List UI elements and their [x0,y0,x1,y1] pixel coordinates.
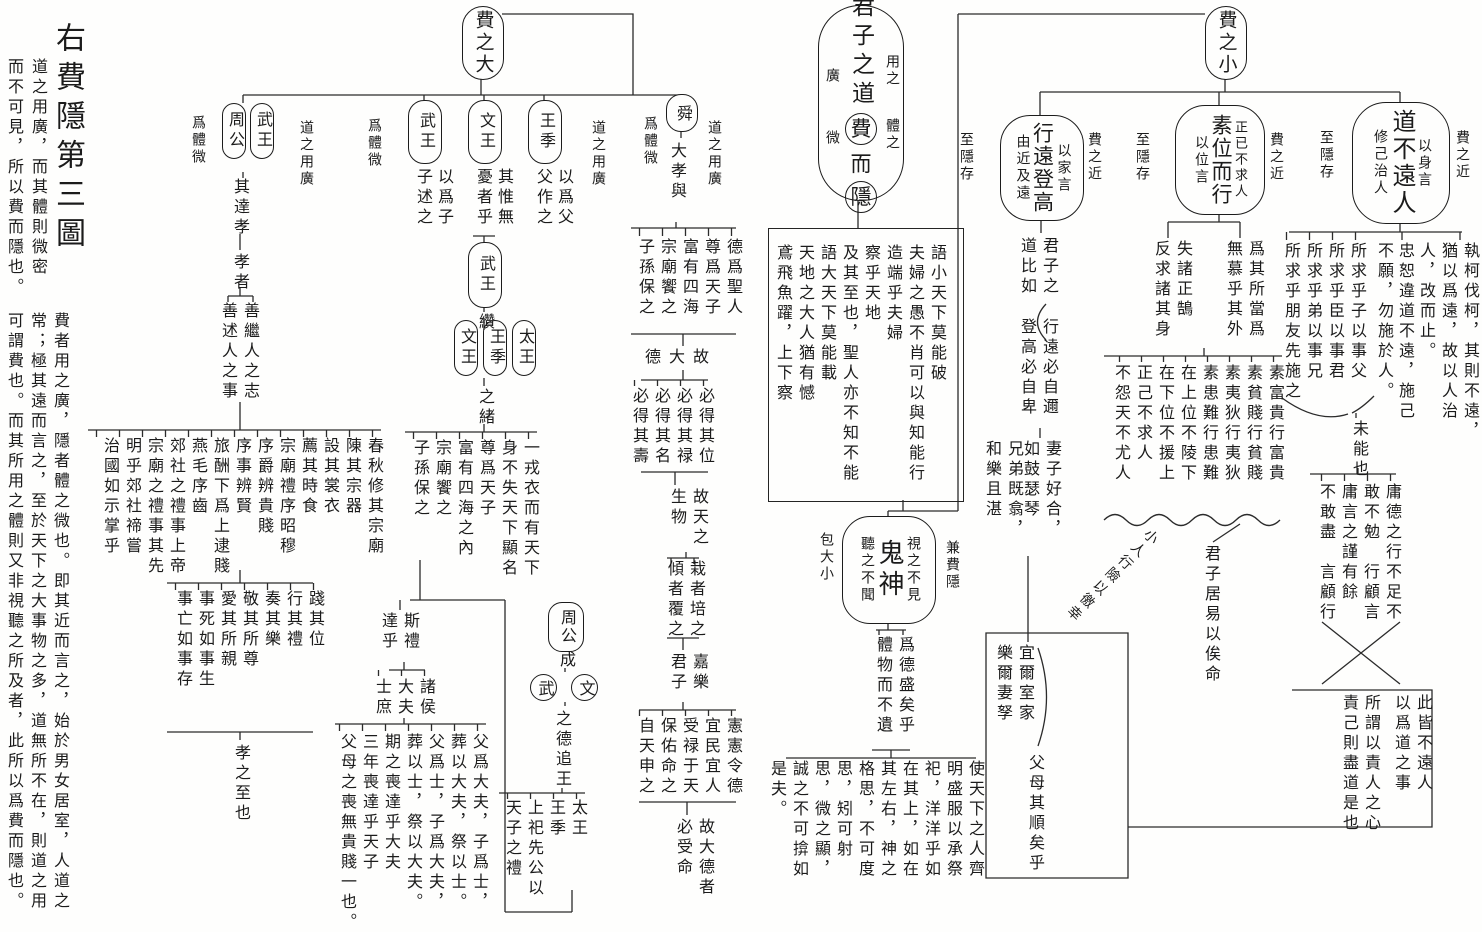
text-column: 善述人之事 [219,302,235,402]
scripture-column: 夫婦之愚不肖可以與知能行 [906,244,922,484]
note-dao-zhi-yong-guang-2: 道之用廣 [590,120,604,188]
text-column: 登高必自卑 [1018,318,1034,418]
fei-zhi-da-label: 費之大 [474,10,493,76]
mourning-column: 期之喪達乎大夫 [382,733,398,932]
wangji-oval: 王季 [528,100,562,164]
note-guang: 廣 [824,68,838,85]
guishen-inner: 視之不見 鬼神 聽之不聞 [859,536,919,604]
person-oval: 周公 [222,103,246,159]
dao-bu-yuan-inner: 以身言 道不遠人 修己治人 [1372,109,1430,217]
text-column: 爲德盛矣乎 [896,636,912,736]
text-column: 不敢盡 言顧行 [1317,483,1333,623]
dao-bu-yuan-node: 以身言 道不遠人 修己治人 [1352,102,1450,224]
text-column: 富有四海 [680,238,696,318]
text-column: 自天申之 [636,717,652,797]
zhougong-cheng-label: 周公 [558,609,574,645]
text-column: 栽者培之 [687,560,703,640]
margin-note-column: 可謂費也。而其所用之體則又非視聽之所及者，此所以爲費而隱也。 [5,312,21,912]
rite-column: 宗廟禮序昭穆 [277,437,293,577]
fei-zhi-xiao-label: 費之小 [1217,10,1236,76]
xing-yuan-inner: 以家言 行遠登高 由近及遠 [1015,122,1070,214]
text-column: 無慕乎其外 [1224,240,1240,340]
su-wei-inner: 正已不求人 素位而行 以位言 [1193,114,1247,206]
text-column: 反求諸其身 [1152,240,1168,340]
practice-column: 奏其樂 [262,590,278,690]
text-column: 責己則盡道是也 [1340,694,1356,834]
zhi-yin-cun-1: 至隱存 [958,132,972,183]
dao-bu-yuan-note-right: 以身言 [1416,138,1430,189]
su-wei-columns: 素富貴行富貴素貧賤行貧賤素夷狄行夷狄素患難行患難在上位不陵下在下位不援上正己不求… [1112,364,1282,484]
rank-column: 大夫 [395,678,411,718]
text-column: 德爲聖人 [724,238,740,318]
text-column: 所求乎子以事父 [1348,242,1364,402]
fei-zhi-jin-3: 費之近 [1454,130,1468,181]
text-column: 宜民宜人 [702,717,718,797]
fei-zhi-jin-2: 費之近 [1268,132,1282,183]
text-column: 善繼人之志 [241,302,257,402]
link-char: 大 [666,348,682,368]
note-dao-zhi-yong-guang-3: 道之用廣 [706,120,720,188]
wuwang-merit-columns: 一戎衣而有天下身不失天下顯名尊爲天子富有四海之內宗廟饗之子孫保之 [411,439,537,579]
zhike-faka-passage: 執柯伐柯，其則不遠，猶以爲遠，故以人治人，改而止。 [1414,242,1480,456]
merit-column: 宗廟饗之 [433,439,449,579]
text-column: 此皆不遠人 [1414,694,1430,794]
text-column: 憲憲令德 [724,717,740,797]
center-columns: 語小天下莫能破夫婦之愚不肖可以與知能行造端乎夫婦察乎天地及其至也，聖人亦不知不能… [774,244,944,484]
er-char: 而 [851,148,872,178]
rite-column: 設其裳衣 [321,437,337,577]
scripture-column: 天地之大人猶有憾 [796,244,812,484]
merit-column: 富有四海之內 [455,439,471,579]
mourning-column: 葬以士，祭以大夫。 [404,733,420,932]
poem-xiongdi: 兄弟既翕，和樂且湛 [980,440,1024,554]
su-wei-pair2: 失諸正鵠反求諸其身 [1152,240,1190,340]
king-circle: 武 [530,674,557,701]
margin-note-column: 費者用之廣，隱者體之微也。即其近而言之，始於男女居室，人道之 [51,312,67,912]
fei-zhi-da-node: 費之大 [462,6,504,80]
xing-yuan-note-right: 以家言 [1056,143,1070,194]
zhougong-wuwang-ovals: 武王周公 [222,103,274,159]
text-column: 故天之 [690,488,706,548]
text-column: 宗廟饗之 [658,238,674,318]
note-wei-ti-wei: 爲體微 [190,115,204,166]
su-wei-label: 素位而行 [1210,114,1231,206]
rite-column: 燕毛序齒 [189,437,205,577]
yin-circled-char: 隱 [845,181,877,213]
text-column: 所求乎弟以事兄 [1304,242,1320,402]
fumu-conclusion: 父母其順矣乎 [1026,754,1042,874]
text-column: 天子之禮 [503,799,519,899]
wei-neng-ye: 未能也 [1350,420,1366,480]
shan-ji-shan-shu-pair: 善繼人之志善述人之事 [219,302,257,402]
practice-column: 踐其位 [306,590,322,690]
note-wei-ti-wei-2: 爲體微 [366,118,380,169]
rite-column: 薦其時食 [299,437,315,577]
scripture-column: 語小天下莫能破 [928,244,944,484]
guishen-note-left: 聽之不聞 [859,536,873,604]
practice-column: 愛其所親 [218,590,234,690]
diagram-canvas: 右費隱第三圖 道之用廣，而其體則微密而不可見，所以費而隱也。 費者用之廣，隱者體… [0,0,1482,932]
shun-cols2: 必得其位必得其禄必得其名必得其壽 [630,387,712,467]
diagram-title: 右費隱第三圖 [52,22,82,256]
person-oval: 太王 [512,320,536,376]
person-oval: 武王 [250,103,274,159]
jian-fei-yin-label: 兼費隱 [944,540,958,591]
king-circle: 文 [571,674,598,701]
note-ti-zhi: 體之 [884,118,898,152]
scripture-column: 察乎天地 [862,244,878,484]
scripture-column: 鳶飛魚躍，上下察 [774,244,790,484]
rank-column: 士庶 [373,678,389,718]
mourning-column: 父爲士，子爲大夫， [426,733,442,932]
margin-note-1: 道之用廣，而其體則微密而不可見，所以費而隱也。 [5,58,45,298]
note-column: 子述之 [414,168,430,228]
text-column: 生物 [668,488,684,548]
text-column: 庸言之謹有餘 [1339,483,1355,623]
ancestor-ovals: 太王王季文王 [454,320,536,376]
zhi-yin-cun-3: 至隱存 [1318,130,1332,181]
text-column: 正己不求人 [1134,364,1150,484]
ci-jie-conclusion: 此皆不遠人以爲道之事 [1392,694,1430,794]
merit-column: 尊爲天子 [477,439,493,579]
da-xiao-yu: 大孝與 [668,142,684,202]
mourning-column: 葬以大夫，祭以士。 [448,733,464,932]
suo-qiu-columns: 所求乎子以事父所求乎臣以事君所求乎弟以事兄所求乎朋友先施之 [1282,242,1364,402]
shun-cols4: 憲憲令德宜民宜人受禄于天保佑命之自天申之 [636,717,740,797]
text-column: 體物而不遺 [874,636,890,736]
text-column: 必受命 [674,818,690,898]
dao-bu-yuan-label: 道不遠人 [1389,109,1413,217]
note-column: 其惟無 [495,168,511,228]
merit-column: 子孫保之 [411,439,427,579]
scripture-column: 語大天下莫能載 [818,244,834,484]
margin-note-column: 道之用廣，而其體則微密 [29,58,45,298]
yong-de-pairs: 庸德之行不足不敢不勉 行顧言庸言之謹有餘不敢盡 言顧行 [1317,483,1399,623]
link-char: 故 [690,348,706,368]
mourning-column: 三年喪達乎天子 [360,733,376,932]
note-column: 以爲父 [555,168,571,228]
wuwang-label: 武王 [417,112,433,152]
text-column: 尊爲天子 [702,238,718,318]
su-wei-note-left: 以位言 [1193,135,1207,186]
text-column: 宜爾室家 [1016,644,1032,724]
text-column: 樂爾妻孥 [994,644,1010,724]
zhougong-cheng-oval: 周公 [548,602,584,652]
si-li-head: 斯禮達乎 [379,612,417,652]
text-column: 必得其禄 [674,387,690,467]
gu-da-de-link: 故大德 [642,348,706,368]
note-column: 以爲子 [435,168,451,228]
wenwang-label: 文王 [477,112,493,152]
node-pre-text: 君子之道 [850,0,873,110]
guishen-pair: 爲德盛矣乎體物而不遺 [874,636,912,736]
guishen-note-right: 視之不見 [905,536,919,604]
text-column: 嘉樂 [690,653,706,693]
xing-yuan-node: 以家言 行遠登高 由近及遠 [1000,115,1084,221]
text-column: 在下位不援上 [1156,364,1172,484]
zhi-yin-cun-2: 至隱存 [1134,132,1148,183]
margin-note-2: 費者用之廣，隱者體之微也。即其近而言之，始於男女居室，人道之常；極其遠而言之，至… [5,312,67,912]
zhui-wang-columns: 太王王季上祀先公以天子之禮 [503,799,585,899]
zhui-wang-tail: 之德追王 [553,710,569,790]
wenwang-oval: 文王 [468,100,502,164]
shun-cols1: 德爲聖人尊爲天子富有四海宗廟饗之子孫保之 [636,238,740,318]
rite-column: 宗廟之禮事其先 [145,437,161,577]
jia-le-junzi-link: 嘉樂君子 [668,653,706,693]
shun-oval: 舜 [666,94,698,132]
link-char: 德 [642,348,658,368]
fei-zhi-xiao-node: 費之小 [1205,6,1247,80]
wuwang-oval: 武王 [408,100,442,164]
scripture-column: 造端乎夫婦 [884,244,900,484]
text-column: 故大德者 [696,818,712,898]
wuwang-notes: 以爲子子述之 [414,168,451,228]
rites-columns: 春秋修其宗廟陳其宗器設其裳衣薦其時食宗廟禮序昭穆序爵辨貴賤序事辨賢旅酬下爲上逮賤… [101,437,381,577]
practice-column: 事亡如事存 [174,590,190,690]
qi-da-xiao: 其達孝 [231,178,247,238]
note-wei: 微 [824,130,838,147]
junzi-bi-ru-chain: 君子之道比如 [1018,237,1056,297]
person-oval: 文王 [454,320,478,376]
zhongshu-passage: 忠恕違道不遠，施己不願，勿施於人。 [1373,242,1415,434]
xiao-zhe: 孝者 [231,253,247,293]
rite-column: 治國如示掌乎 [101,437,117,577]
scripture-column: 及其至也，聖人亦不知不能 [840,244,856,484]
gu-tian-zhi-link: 故天之生物 [668,488,706,548]
wuwang-mid-oval: 武王 [468,242,502,308]
su-wei-node: 正已不求人 素位而行 以位言 [1175,105,1265,215]
practice-column: 敬其所尊 [240,590,256,690]
text-column: 在上位不陵下 [1178,364,1194,484]
note-column: 憂者乎 [474,168,490,228]
si-li-ranks: 諸侯大夫士庶 [373,678,433,718]
junzi-ju-yi: 君子居易以俟命 [1202,545,1218,685]
dao-bu-yuan-note-left: 修己治人 [1372,129,1386,197]
text-column: 素夷狄行夷狄 [1222,364,1238,484]
xing-yuan-pair: 行遠必自邇登高必自卑 [1018,318,1056,418]
margin-note-column: 而不可見，所以費而隱也。 [5,58,21,298]
shun-label: 舜 [674,105,690,121]
text-column: 所謂以責人之心 [1362,694,1378,834]
practice-column: 行其禮 [284,590,300,690]
zhi-xu: 之緒 [476,388,492,428]
text-column: 傾者覆之 [665,560,681,640]
wuwang-mid-label: 武王 [477,255,493,295]
su-wei-pair1: 爲其所當爲無慕乎其外 [1224,240,1262,340]
rite-column: 序事辨賢 [233,437,249,577]
suo-wei-conclusion: 所謂以責人之心責己則盡道是也 [1340,694,1378,834]
text-column: 保佑命之 [658,717,674,797]
text-column: 素患難行患難 [1200,364,1216,484]
wen-wu-circles: 文武 [530,674,598,701]
rite-column: 春秋修其宗廟 [365,437,381,577]
text-column: 以爲道之事 [1392,694,1408,794]
mourning-column: 父母之喪無貴賤一也。 [338,733,354,932]
poem-qizi: 妻子好合，如鼓瑟琴 [1018,440,1062,554]
text-column: 必得其位 [696,387,712,467]
xing-yuan-note-left: 由近及遠 [1015,134,1029,202]
wangji-notes: 以爲父父作之 [534,168,571,228]
text-column: 君子 [668,653,684,693]
rite-column: 陳其宗器 [343,437,359,577]
su-wei-note-right: 正已不求人 [1234,120,1247,200]
text-column: 上祀先公以 [525,799,541,899]
text-column: 君子之 [1040,237,1056,297]
note-wei-ti-wei-3: 爲體微 [642,116,656,167]
rite-column: 郊社之禮事上帝 [167,437,183,577]
text-column: 失諸正鵠 [1174,240,1190,340]
si-li-columns: 父爲大夫，子爲士，葬以大夫，祭以士。父爲士，子爲大夫，葬以士，祭以大夫。期之喪達… [338,733,486,932]
merit-column: 身不失天下顯名 [499,439,515,579]
junzi-zhi-dao-stack: 君子之道 費 而 隱 [845,0,877,213]
xing-yuan-label: 行遠登高 [1032,122,1053,214]
junzi-zhi-dao-node: 君子之道 費 而 隱 用之 體之 廣 微 [818,5,904,201]
rite-column: 旅酬下爲上逮賤 [211,437,227,577]
note-yong-zhi: 用之 [884,54,898,88]
mourning-column: 父爲大夫，子爲士， [470,733,486,932]
text-column: 庸德之行不足不 [1383,483,1399,623]
text-column: 不怨天不尤人 [1112,364,1128,484]
guishen-node: 視之不見 鬼神 聽之不聞 [842,516,936,624]
text-column: 王季 [547,799,563,899]
practice-columns: 踐其位行其禮奏其樂敬其所尊愛其所親事死如事生事亡如事存 [174,590,322,690]
text-column: 素富貴行富貴 [1266,364,1282,484]
guishen-label: 鬼神 [876,539,902,601]
text-column: 所求乎朋友先施之 [1282,242,1298,402]
rite-column: 明乎郊社禘嘗 [123,437,139,577]
text-column: 受禄于天 [680,717,696,797]
text-column: 斯禮 [401,612,417,652]
text-column: 所求乎臣以事君 [1326,242,1342,402]
text-column: 達乎 [379,612,395,652]
rank-column: 諸侯 [417,678,433,718]
practice-column: 事死如事生 [196,590,212,690]
note-column: 父作之 [534,168,550,228]
yi-er-pair: 宜爾室家樂爾妻孥 [994,644,1032,724]
text-column: 子孫保之 [636,238,652,318]
merit-column: 一戎衣而有天下 [521,439,537,579]
margin-note-column: 常；極其遠而言之，至於天下之大事物之多，道無所不在，則道之用 [28,312,44,912]
shun-conclusion: 故大德者必受命 [674,818,712,898]
guishen-passage: 使天下之人齊明盛服以承祭祀，洋洋乎如在其上，如在其左右，神之格思，不可度思，矧可… [765,760,985,898]
text-column: 敢不勉 行顧言 [1361,483,1377,623]
xiao-zhi-zhi-ye: 孝之至也 [232,744,248,824]
wenwang-notes: 其惟無憂者乎 [474,168,511,228]
text-column: 爲其所當爲 [1246,240,1262,340]
wangji-label: 王季 [537,112,553,152]
text-column: 行遠必自邇 [1040,318,1056,418]
text-column: 素貧賤行貧賤 [1244,364,1260,484]
text-column: 必得其名 [652,387,668,467]
bao-da-xiao-label: 包大小 [818,532,832,583]
text-column: 太王 [569,799,585,899]
text-column: 必得其壽 [630,387,646,467]
text-column: 道比如 [1018,237,1034,297]
note-dao-zhi-yong-guang: 道之用廣 [298,120,312,188]
fei-zhi-jin-1: 費之近 [1086,132,1100,183]
shun-cols3: 栽者培之傾者覆之 [665,560,703,640]
person-oval: 王季 [483,320,507,376]
fei-circled-char: 費 [845,113,877,145]
cheng-char: 成 [557,651,573,671]
rite-column: 序爵辨貴賤 [255,437,271,577]
